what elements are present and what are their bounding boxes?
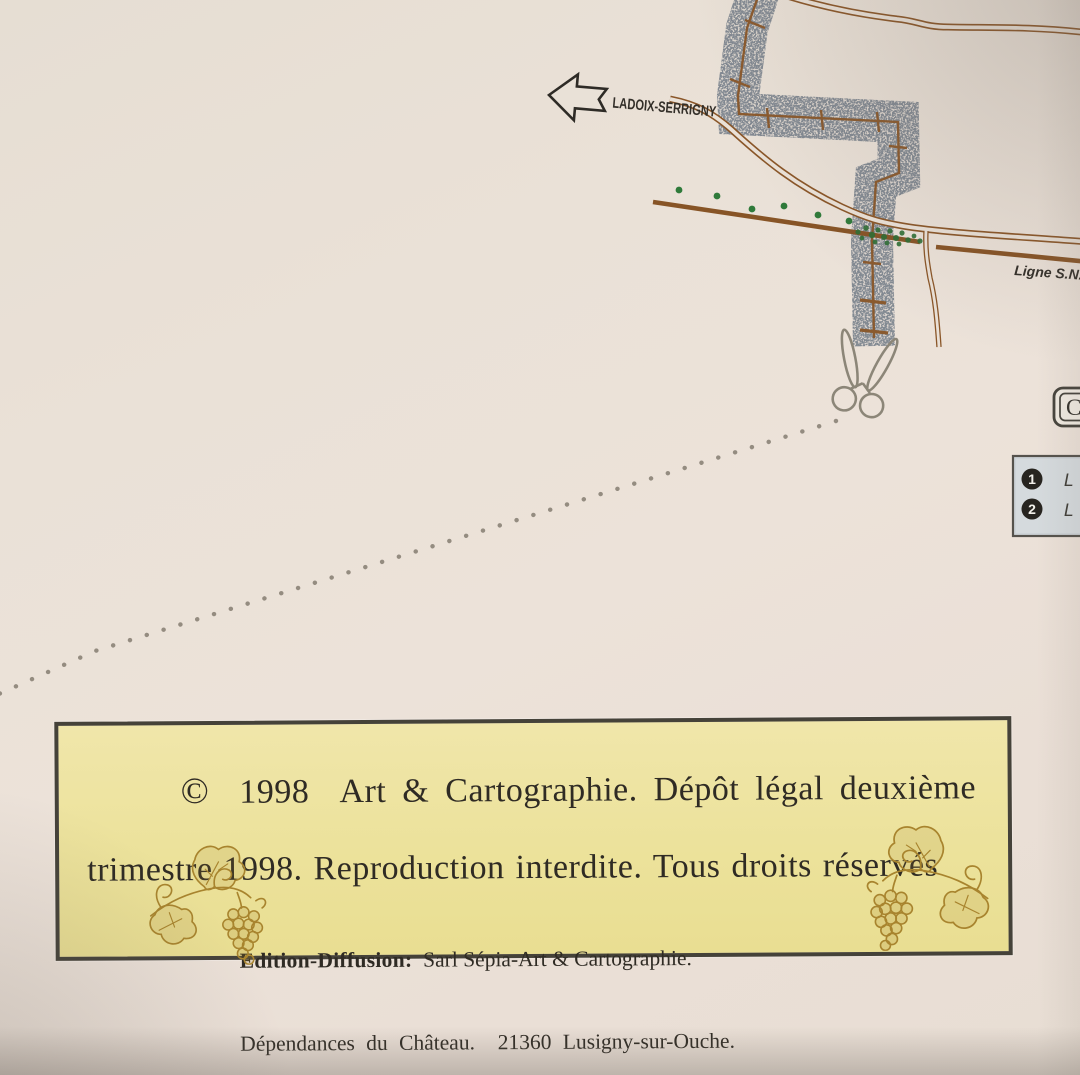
direction-sign: LADOIX-SERRIGNY <box>547 72 718 132</box>
cut-dotted-line <box>0 421 836 697</box>
left-arrow-icon <box>547 72 608 123</box>
direction-sign-label: LADOIX-SERRIGNY <box>612 95 717 121</box>
svg-text:L: L <box>1064 471 1073 491</box>
title-cartouche: C <box>1054 388 1080 426</box>
grape-vine-icon <box>137 833 276 966</box>
copyright-box: ©1998 Art & Cartographie. Dépôt légal de… <box>54 716 1012 961</box>
grape-vine-icon <box>860 812 999 951</box>
railway-label: Ligne S.N.C.F. <box>1014 262 1080 284</box>
legend-panel: 1 L 2 L <box>1013 456 1080 536</box>
svg-text:2: 2 <box>1028 501 1036 517</box>
svg-text:L: L <box>1064 501 1073 521</box>
map-photo: Ligne S.N.C.F. LADOIX-SERRIGNY C <box>0 0 1080 1075</box>
cartouche-label: C <box>1066 395 1080 420</box>
copyright-symbol: © <box>181 771 210 812</box>
svg-text:1: 1 <box>1028 471 1036 487</box>
address-line: Dépendances du Château. 21360 Lusigny-su… <box>240 1026 1009 1058</box>
boundary-stipple-band <box>738 0 899 346</box>
road-top <box>781 0 1080 33</box>
